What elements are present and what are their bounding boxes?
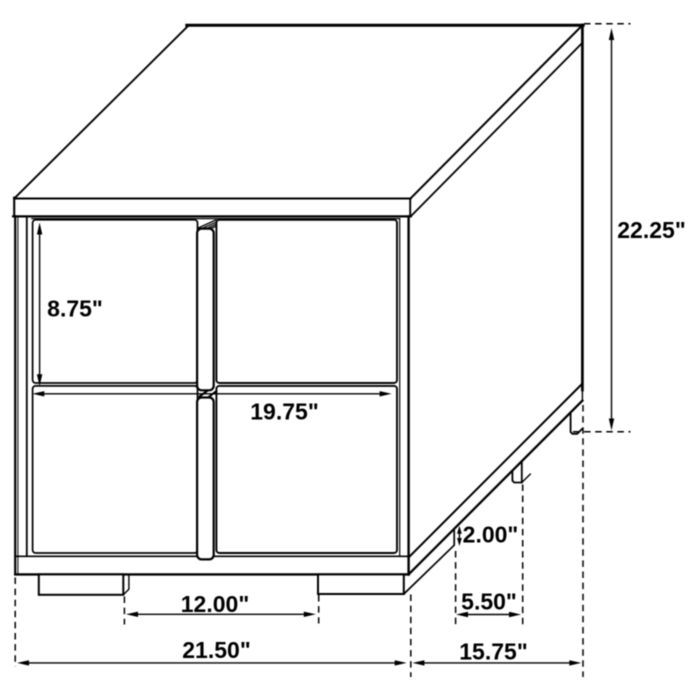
svg-text:21.50": 21.50" — [182, 637, 250, 663]
svg-text:22.25": 22.25" — [617, 217, 685, 243]
svg-text:5.50": 5.50" — [461, 589, 517, 615]
svg-text:2.00": 2.00" — [463, 522, 519, 548]
svg-text:12.00": 12.00" — [181, 591, 249, 617]
svg-text:19.75": 19.75" — [250, 399, 318, 425]
svg-text:8.75": 8.75" — [47, 296, 103, 322]
svg-text:15.75": 15.75" — [459, 639, 527, 665]
